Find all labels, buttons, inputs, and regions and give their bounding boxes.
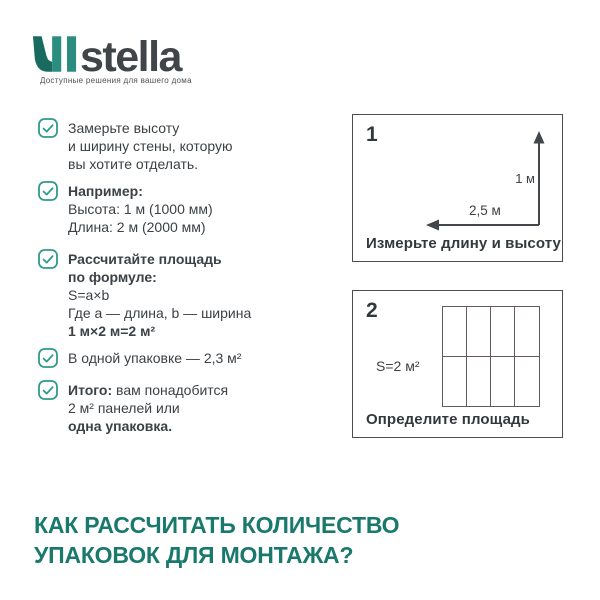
- checkbox-checked-icon: [38, 348, 58, 368]
- area-label: S=2 м²: [376, 358, 419, 374]
- checklist-line: и ширину стены, которую: [68, 137, 233, 155]
- checkbox-checked-icon: [38, 380, 58, 400]
- checklist-line-title: Например:: [68, 182, 213, 200]
- checklist-line: одна упаковка.: [68, 417, 228, 435]
- left-arrow-head: [426, 220, 439, 231]
- panel-caption: Определите площадь: [366, 411, 530, 428]
- page-heading: КАК РАССЧИТАТЬ КОЛИЧЕСТВО УПАКОВОК ДЛЯ М…: [34, 510, 399, 570]
- checklist-line: S=a×b: [68, 286, 251, 304]
- figure-panel-measure: 1 1 м 2,5 м Измерьте длину и высоту: [352, 114, 563, 262]
- panel-cell: [443, 307, 467, 357]
- panel-cell: [515, 357, 539, 407]
- checklist-item-total: Итого: вам понадобится 2 м² панелей или …: [38, 380, 228, 435]
- panel-cell: [467, 357, 491, 407]
- checklist-line: 2 м² панелей или: [68, 399, 228, 417]
- checklist-line-title: по формуле:: [68, 268, 251, 286]
- heading-line-2: УПАКОВОК ДЛЯ МОНТАЖА?: [34, 540, 399, 570]
- checklist-line-title: Рассчитайте площадь: [68, 250, 251, 268]
- stella-logo-icon: [32, 36, 78, 73]
- checklist-line: 1 м×2 м=2 м²: [68, 322, 251, 340]
- checklist-line-prefix: Итого:: [68, 382, 112, 398]
- checklist-line-rest: вам понадобится: [112, 382, 228, 398]
- panel-number: 2: [366, 299, 378, 323]
- checklist-line: вы хотите отделать.: [68, 155, 233, 173]
- checklist-line: Где a — длина, b — ширина: [68, 304, 251, 322]
- panel-cell: [491, 307, 515, 357]
- heading-line-1: КАК РАССЧИТАТЬ КОЛИЧЕСТВО: [34, 510, 399, 540]
- checkbox-checked-icon: [38, 249, 58, 269]
- panels-grid-diagram: [442, 306, 540, 407]
- panel-cell: [467, 307, 491, 357]
- height-label: 1 м: [515, 171, 535, 186]
- checklist-line: В одной упаковке — 2,3 м²: [68, 349, 241, 367]
- panel-cell: [443, 357, 467, 407]
- checklist-line: Длина: 2 м (2000 мм): [68, 218, 213, 236]
- checklist-line: Итого: вам понадобится: [68, 381, 228, 399]
- figure-panel-area: 2 S=2 м² Определите площадь: [352, 290, 563, 438]
- brand-wordmark: stella: [80, 37, 181, 77]
- checkbox-checked-icon: [38, 118, 58, 138]
- checklist-item-example: Например: Высота: 1 м (1000 мм) Длина: 2…: [38, 181, 213, 236]
- checkbox-checked-icon: [38, 181, 58, 201]
- panel-caption: Измерьте длину и высоту: [366, 235, 561, 252]
- checklist-item-formula: Рассчитайте площадь по формуле: S=a×b Гд…: [38, 249, 251, 340]
- brand-tagline: Доступные решения для вашего дома: [40, 76, 192, 85]
- panel-cell: [515, 307, 539, 357]
- length-label: 2,5 м: [469, 203, 501, 218]
- checklist-item-measure: Замерьте высоту и ширину стены, которую …: [38, 118, 233, 173]
- checklist-line: Высота: 1 м (1000 мм): [68, 200, 213, 218]
- panel-cell: [491, 357, 515, 407]
- checklist-item-package-area: В одной упаковке — 2,3 м²: [38, 348, 241, 368]
- checklist-line: Замерьте высоту: [68, 119, 233, 137]
- up-arrow-head: [534, 131, 545, 144]
